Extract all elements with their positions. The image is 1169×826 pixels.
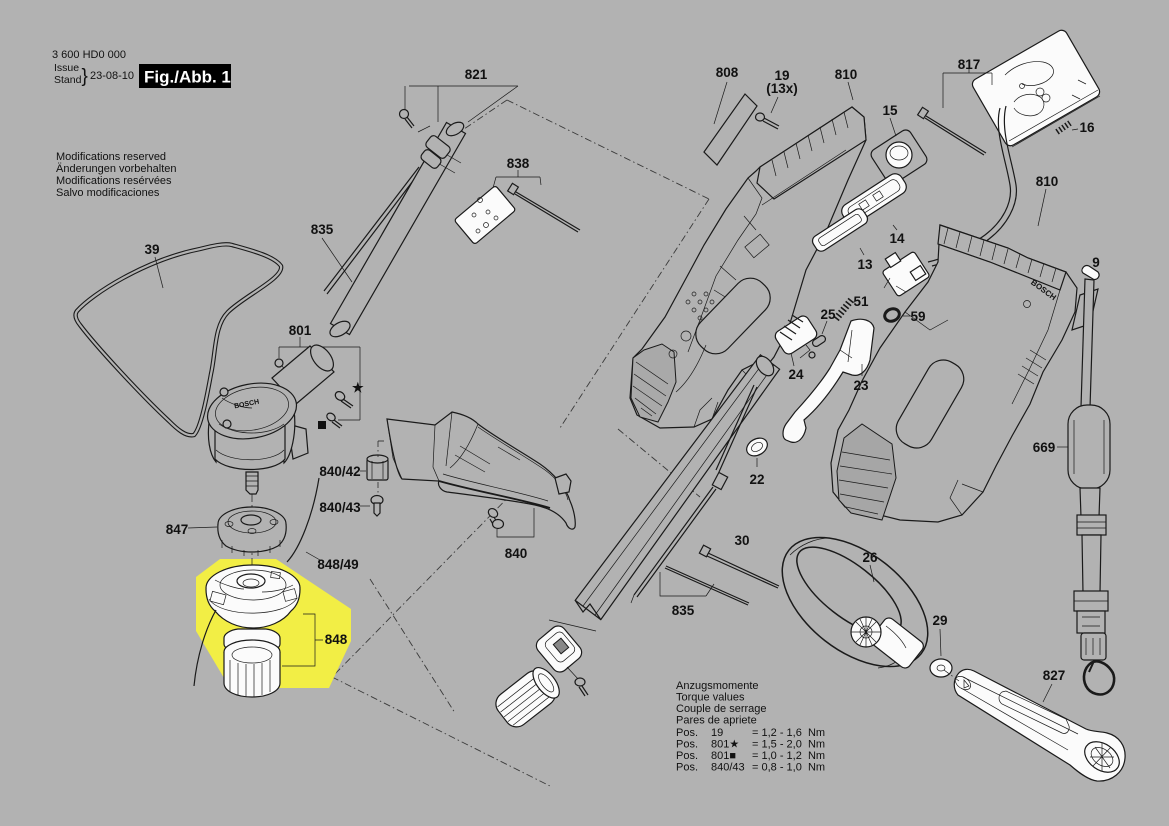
svg-text:Torque values: Torque values — [676, 692, 745, 704]
svg-text:801■: 801■ — [711, 750, 736, 762]
svg-text:Issue: Issue — [54, 62, 79, 74]
svg-text:835: 835 — [672, 603, 695, 618]
svg-text:13: 13 — [857, 257, 873, 272]
svg-text:810: 810 — [1036, 174, 1059, 189]
svg-text:817: 817 — [958, 57, 981, 72]
svg-text:801: 801 — [289, 323, 312, 338]
svg-text:669: 669 — [1033, 440, 1056, 455]
svg-text:24: 24 — [788, 367, 804, 382]
svg-text:Pos.: Pos. — [676, 762, 698, 774]
svg-text:821: 821 — [465, 67, 488, 82]
svg-text:19: 19 — [711, 727, 723, 739]
svg-text:16: 16 — [1079, 120, 1095, 135]
svg-text:14: 14 — [889, 231, 905, 246]
svg-text:Modifications reserved: Modifications reserved — [56, 151, 166, 163]
svg-text:Pos.: Pos. — [676, 727, 698, 739]
svg-text:29: 29 — [932, 613, 947, 628]
svg-text:840/42: 840/42 — [319, 464, 360, 479]
svg-text:9: 9 — [1092, 255, 1100, 270]
svg-text:(13x): (13x) — [766, 81, 798, 96]
svg-text:= 1,2 - 1,6 Nm: = 1,2 - 1,6 Nm — [752, 727, 825, 739]
svg-text:★: ★ — [352, 380, 364, 395]
svg-text:848/49: 848/49 — [317, 557, 358, 572]
svg-text:Pos.: Pos. — [676, 739, 698, 751]
svg-text:= 0,8 - 1,0 Nm: = 0,8 - 1,0 Nm — [752, 762, 825, 774]
svg-text:23-08-10: 23-08-10 — [90, 70, 134, 82]
svg-text:26: 26 — [862, 550, 878, 565]
svg-text:}: } — [82, 66, 88, 87]
svg-text:Fig./Abb. 1: Fig./Abb. 1 — [144, 68, 231, 87]
svg-text:Modifications resérvées: Modifications resérvées — [56, 175, 172, 187]
svg-text:840: 840 — [505, 546, 528, 561]
svg-text:15: 15 — [882, 103, 898, 118]
svg-text:808: 808 — [716, 65, 739, 80]
svg-text:847: 847 — [166, 522, 189, 537]
svg-text:827: 827 — [1043, 668, 1066, 683]
svg-text:Anzugsmomente: Anzugsmomente — [676, 680, 759, 692]
svg-text:848: 848 — [325, 632, 348, 647]
svg-text:Pares de apriete: Pares de apriete — [676, 715, 757, 727]
svg-text:39: 39 — [144, 242, 159, 257]
svg-text:810: 810 — [835, 67, 858, 82]
svg-text:801★: 801★ — [711, 739, 739, 751]
svg-text:Couple de serrage: Couple de serrage — [676, 703, 767, 715]
svg-text:835: 835 — [311, 222, 334, 237]
svg-text:25: 25 — [820, 307, 836, 322]
svg-text:838: 838 — [507, 156, 530, 171]
svg-text:840/43: 840/43 — [319, 500, 361, 515]
svg-text:59: 59 — [910, 309, 925, 324]
svg-text:22: 22 — [749, 472, 764, 487]
svg-text:3 600 HD0 000: 3 600 HD0 000 — [52, 49, 126, 61]
svg-text:23: 23 — [853, 378, 869, 393]
svg-text:= 1,5 - 2,0 Nm: = 1,5 - 2,0 Nm — [752, 739, 825, 751]
svg-text:30: 30 — [734, 533, 749, 548]
svg-text:51: 51 — [853, 294, 869, 309]
svg-text:Pos.: Pos. — [676, 750, 698, 762]
svg-text:Änderungen vorbehalten: Änderungen vorbehalten — [56, 163, 176, 175]
svg-text:840/43: 840/43 — [711, 762, 745, 774]
svg-text:Salvo modificaciones: Salvo modificaciones — [56, 187, 160, 199]
svg-text:= 1,0 - 1,2 Nm: = 1,0 - 1,2 Nm — [752, 750, 825, 762]
svg-text:Stand: Stand — [54, 74, 82, 86]
